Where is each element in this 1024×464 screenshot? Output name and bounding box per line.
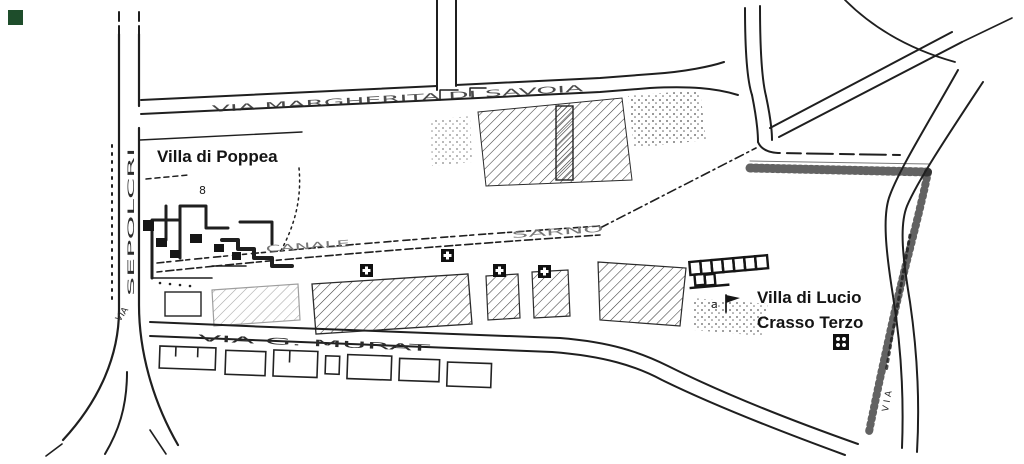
right-street-lettering-marks bbox=[886, 235, 910, 372]
north-hatched-blocks bbox=[430, 90, 706, 186]
plan-letter-label: a bbox=[711, 298, 718, 311]
canal-name-word1: CANALE bbox=[266, 239, 351, 255]
south-blocks bbox=[165, 262, 768, 336]
plan-number-label: 8 bbox=[199, 184, 206, 197]
villa-crasso-label-line2: Crasso Terzo bbox=[757, 313, 863, 332]
poi-marker-icon bbox=[360, 264, 373, 277]
poi-marker-icon bbox=[833, 334, 849, 350]
villa-crasso-label-line1: Villa di Lucio bbox=[757, 288, 862, 307]
map-drawing: 8 bbox=[0, 0, 1024, 464]
murat-south-buildings bbox=[159, 346, 492, 388]
junction-north-road bbox=[745, 6, 900, 155]
north-cross-street bbox=[437, 0, 456, 90]
poi-marker-icon bbox=[441, 249, 454, 262]
street-name-left-via: VIA bbox=[114, 305, 131, 324]
right-road bbox=[886, 70, 983, 452]
sarno-canal bbox=[157, 148, 756, 272]
oplontis-map: 8 bbox=[0, 0, 1024, 464]
street-name-left: SEPOLCRI bbox=[127, 148, 137, 296]
villa-poppea-label: Villa di Poppea bbox=[157, 147, 278, 166]
street-name-right-via: VIA bbox=[881, 387, 895, 412]
villa-poppea-plan: 8 bbox=[143, 184, 292, 287]
poi-marker-icon bbox=[493, 264, 506, 277]
northeast-diagonal-road bbox=[770, 0, 1012, 137]
poi-marker-icon bbox=[538, 265, 551, 278]
left-road bbox=[46, 12, 178, 456]
